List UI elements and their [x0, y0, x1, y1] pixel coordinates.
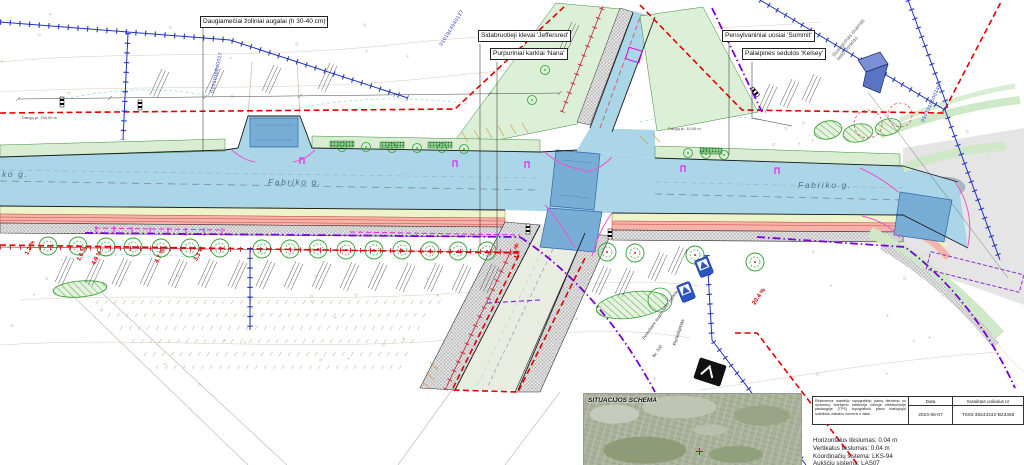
location-marker-icon	[696, 448, 703, 455]
dim-label-right: Dangų pl. 10.00 m	[668, 127, 701, 131]
street-label-left: ko g.	[2, 170, 28, 179]
aerial-photo	[584, 394, 801, 465]
situation-schema-inset: SITUACIJOS SCHEMA	[583, 393, 802, 465]
title-block-note: Rinkmenos mastelio topografinių planų de…	[813, 397, 909, 424]
schema-title: SITUACIJOS SCHEMA	[588, 397, 657, 404]
accuracy-line: Horizontalus tikslumas: 0.04 m	[813, 437, 897, 445]
accuracy-line: Aukščių sistema: LAS07	[813, 460, 897, 465]
label-ashes: Pensylvaniniai uosiai 'Summit'	[722, 30, 815, 42]
label-maples: Sidabruotieji klevai 'Jeffersred'	[478, 30, 571, 42]
unique-number: TS03-38243432-B23456	[953, 406, 1023, 424]
street-label-center: Fabriko g.	[268, 178, 322, 187]
label-perennials: Daugiamečiai žoliniai augalai (h 30-40 c…	[200, 16, 328, 28]
title-block: Rinkmenos mastelio topografinių planų de…	[812, 396, 1024, 425]
street-label-right: Fabriko g.	[798, 181, 852, 190]
col-header-date: Data	[909, 397, 953, 406]
approval-date: 2024-06-07	[909, 406, 953, 424]
accuracy-notes: Horizontalus tikslumas: 0.04 m Vertikalu…	[813, 437, 897, 465]
col-header-number: Suteiktas unikalus nr	[953, 397, 1023, 406]
dim-label-left: Dangų pl. 194.00 m	[22, 116, 57, 120]
direction-sign-icon	[693, 357, 726, 387]
slope-label: 4.6 %	[514, 243, 521, 258]
field-hatch-rows	[96, 300, 441, 369]
label-willows: Purpuriniai karklai 'Nana'	[490, 48, 568, 60]
accuracy-line: Vertikalus tikslumas: 0.04 m	[813, 445, 897, 453]
label-dogwoods: Palaipinės sedulos 'Kelsey'	[742, 48, 826, 60]
preserved-road-sign-icon	[858, 52, 888, 93]
accuracy-line: Koordinačių sistema: LKS-94	[813, 453, 897, 461]
site-plan-sheet: Daugiamečiai žoliniai augalai (h 30-40 c…	[0, 0, 1024, 465]
